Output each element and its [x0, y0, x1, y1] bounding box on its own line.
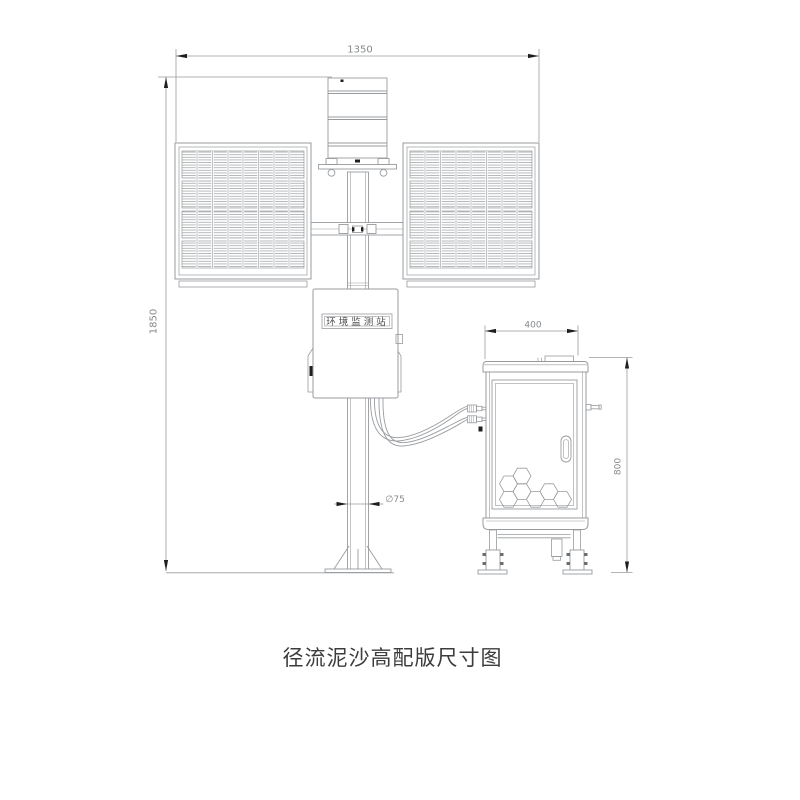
bracket-clamp-left — [326, 159, 337, 165]
bracket-roller-right — [380, 169, 387, 176]
rain-gauge-cylinder — [319, 78, 397, 176]
panel-bottom-rail — [179, 281, 307, 287]
arrowhead-right — [369, 502, 380, 506]
clamp-bolt-end — [352, 227, 354, 231]
cable-line — [374, 398, 467, 438]
leg-bolt — [500, 562, 504, 565]
dim-label-1850: 1850 — [149, 309, 160, 334]
pole-clamp-left — [339, 225, 348, 234]
cable-connectors-left — [468, 405, 487, 432]
equipment-cabinet — [468, 356, 602, 574]
leg-right-upper — [574, 530, 581, 550]
foot-plate-right — [563, 570, 592, 574]
arrowhead-top — [164, 77, 168, 88]
leg-bolt — [584, 562, 588, 565]
cable-line — [370, 398, 467, 441]
crossbar-arm — [311, 223, 403, 236]
arrowhead-right — [528, 54, 539, 58]
solar-panel-left — [175, 143, 311, 287]
leg-bolt — [567, 562, 571, 565]
leg-bolt — [567, 553, 571, 556]
leg-bolt — [483, 562, 487, 565]
base-plate — [325, 569, 391, 573]
foot-plate-left — [478, 570, 507, 574]
pole-clamp-right — [367, 225, 376, 234]
solar-panel-right — [403, 143, 539, 287]
dim-label-800: 800 — [614, 458, 624, 475]
side-connector-right — [586, 405, 601, 411]
gusset-right — [367, 546, 382, 569]
gusset-left — [334, 546, 349, 569]
dimension-drawing: 1350 1850 — [0, 0, 800, 800]
arrowhead-bottom — [625, 562, 629, 573]
drain-pipe-cap — [553, 557, 561, 561]
connector-tip — [599, 405, 601, 409]
dimension-cabinet-height: 800 — [589, 358, 633, 573]
nameplate-label: 环境监测站 — [326, 316, 389, 328]
arrowhead-left — [337, 502, 348, 506]
connector-stem — [482, 418, 486, 421]
drain-pipe — [552, 539, 563, 557]
leg-bolt — [500, 553, 504, 556]
dimension-pole-diameter: ∅75 — [334, 495, 405, 506]
connector-barrel — [591, 406, 599, 409]
connector-stem — [482, 407, 486, 410]
leg-bolt — [584, 553, 588, 556]
drawing-svg: 1350 1850 — [0, 0, 800, 800]
arrowhead-top — [625, 358, 629, 369]
dimension-cabinet-width: 400 — [485, 321, 578, 360]
dim-label-400: 400 — [524, 321, 541, 331]
cabinet-bottom-cap — [483, 518, 588, 530]
pole-base — [325, 546, 391, 573]
panel-bottom-rail — [407, 281, 535, 287]
bracket-plate — [319, 165, 397, 170]
signal-cables — [370, 398, 467, 446]
cabinet-top-box — [545, 356, 574, 362]
arrowhead-left — [176, 54, 187, 58]
leg-left-upper — [490, 530, 497, 550]
leg-bolt — [483, 553, 487, 556]
control-box: 环境监测站 — [308, 289, 403, 398]
clamp-bolt-end — [361, 227, 363, 231]
arrowhead-bottom — [164, 560, 168, 571]
bracket-clamp-right — [378, 159, 389, 165]
leg-right-sleeve — [570, 550, 584, 570]
connector-collar — [477, 406, 483, 410]
bracket-mark — [355, 160, 360, 163]
bracket-roller-left — [328, 169, 335, 176]
arrowhead-right — [567, 329, 578, 333]
cabinet-top-cap — [483, 362, 588, 373]
connector-mark — [479, 427, 483, 432]
connector-plug — [468, 405, 477, 412]
connector-base — [586, 405, 591, 411]
dim-label-dia75: ∅75 — [386, 495, 405, 505]
cable-line — [383, 398, 468, 443]
connector-collar — [477, 417, 483, 421]
connector-plug — [468, 416, 477, 423]
cylinder-mark — [341, 80, 344, 83]
dim-label-1350: 1350 — [347, 45, 372, 56]
arrowhead-left — [485, 329, 496, 333]
drawing-caption: 径流泥沙高配版尺寸图 — [283, 646, 503, 670]
box-body — [313, 289, 398, 398]
hinge-mark — [310, 366, 313, 376]
leg-left-sleeve — [486, 550, 500, 570]
